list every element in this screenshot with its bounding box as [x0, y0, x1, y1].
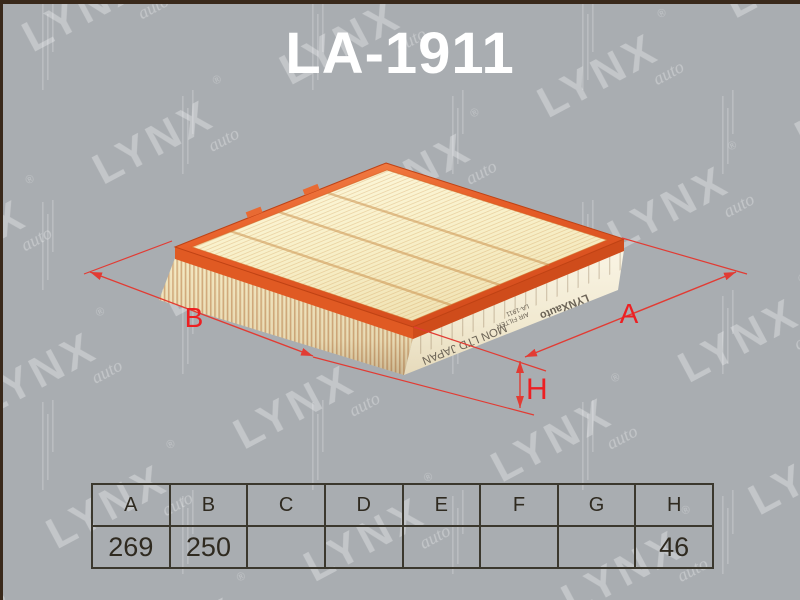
spec-value-b: 250 [170, 526, 248, 568]
spec-value-f [480, 526, 558, 568]
spec-value-h: 46 [635, 526, 713, 568]
spec-table-value-row: 269 250 46 [92, 526, 713, 568]
spec-value-e [403, 526, 481, 568]
dimension-label-a: A [620, 298, 639, 329]
dimension-label-b: B [185, 302, 204, 333]
spec-header-g: G [558, 484, 636, 526]
spec-value-d [325, 526, 403, 568]
page-title: LA-1911 [285, 20, 514, 87]
spec-header-h: H [635, 484, 713, 526]
spec-header-c: C [247, 484, 325, 526]
spec-header-d: D [325, 484, 403, 526]
spec-value-c [247, 526, 325, 568]
product-card: LA-1911 [0, 0, 800, 600]
spec-table-header-row: A B C D E F G H [92, 484, 713, 526]
spec-header-a: A [92, 484, 170, 526]
spec-header-f: F [480, 484, 558, 526]
spec-value-g [558, 526, 636, 568]
spec-table: A B C D E F G H 269 250 46 [91, 483, 714, 569]
spec-header-e: E [403, 484, 481, 526]
spec-header-b: B [170, 484, 248, 526]
dimension-label-h: H [526, 373, 548, 406]
spec-value-a: 269 [92, 526, 170, 568]
